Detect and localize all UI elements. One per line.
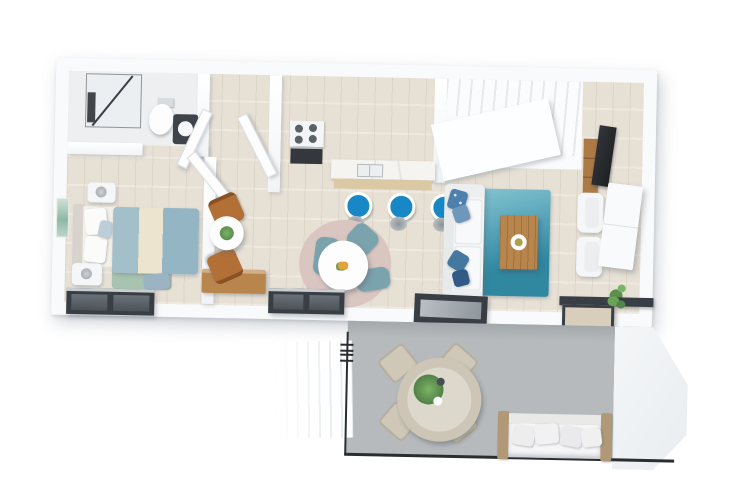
hall-table-plant [220,226,234,240]
shower-enclosure [85,73,142,128]
outdoor-pillow-1 [511,424,536,447]
coffee-table-plate [510,234,526,250]
bedroom-window-pane-2 [113,295,149,312]
burner-4 [309,135,317,143]
gate-hinge-1 [340,344,353,352]
floorplan-render: { "scene": { "type": "3d-floor-plan-top-… [0,0,751,500]
coffee-table [499,215,538,270]
armchair-1 [577,193,604,234]
living-window [414,293,488,325]
outdoor-sofa-arm-right [600,413,612,461]
kitchen-window-sill [269,288,345,293]
plate-food [515,238,523,246]
nightstand-bottom [72,263,102,286]
bed-duvet [112,207,199,275]
kitchen-island [331,159,435,180]
burner-1 [295,125,303,133]
wall-bathroom-bottom-left [67,142,142,156]
island-sink [357,164,383,178]
terrace-right-wall [612,326,689,471]
bedroom-window-pane-1 [71,294,107,311]
sideboard-seam [603,223,638,228]
shower-tray [87,92,96,122]
gate-hinge-2 [340,354,353,362]
nightstand-top [87,182,115,203]
kitchen-window-pane-2 [309,295,339,311]
lamp-bottom [81,268,92,279]
outdoor-pillow-2 [534,423,560,445]
outdoor-table-pot [437,378,445,386]
oven-front [290,147,322,165]
sofa [442,184,485,305]
shower-glass-line [92,75,134,126]
outdoor-pillow-4 [581,428,603,448]
floor-plan [48,58,717,492]
kitchen-window [268,288,345,315]
armchair-1-seat [585,198,600,228]
burner-2 [309,124,317,132]
island-base [334,178,432,190]
outdoor-table-cup [433,397,442,406]
sink-divider [369,165,370,176]
lamp-top [96,186,107,197]
kitchen-window-pane-1 [273,294,303,310]
dining-table-food [338,262,348,270]
wall-art [56,198,70,238]
bed-pillow-2 [83,235,108,263]
bedroom-window [66,288,155,316]
bed-bench [143,272,171,291]
burner-3 [295,136,303,144]
armchair-2-seat [584,242,599,272]
outdoor-sofa [497,411,612,461]
hanging-plant-2 [616,300,625,308]
bedroom-window-sill [67,288,155,293]
living-window-pane [420,299,482,319]
stove-top [290,120,325,147]
